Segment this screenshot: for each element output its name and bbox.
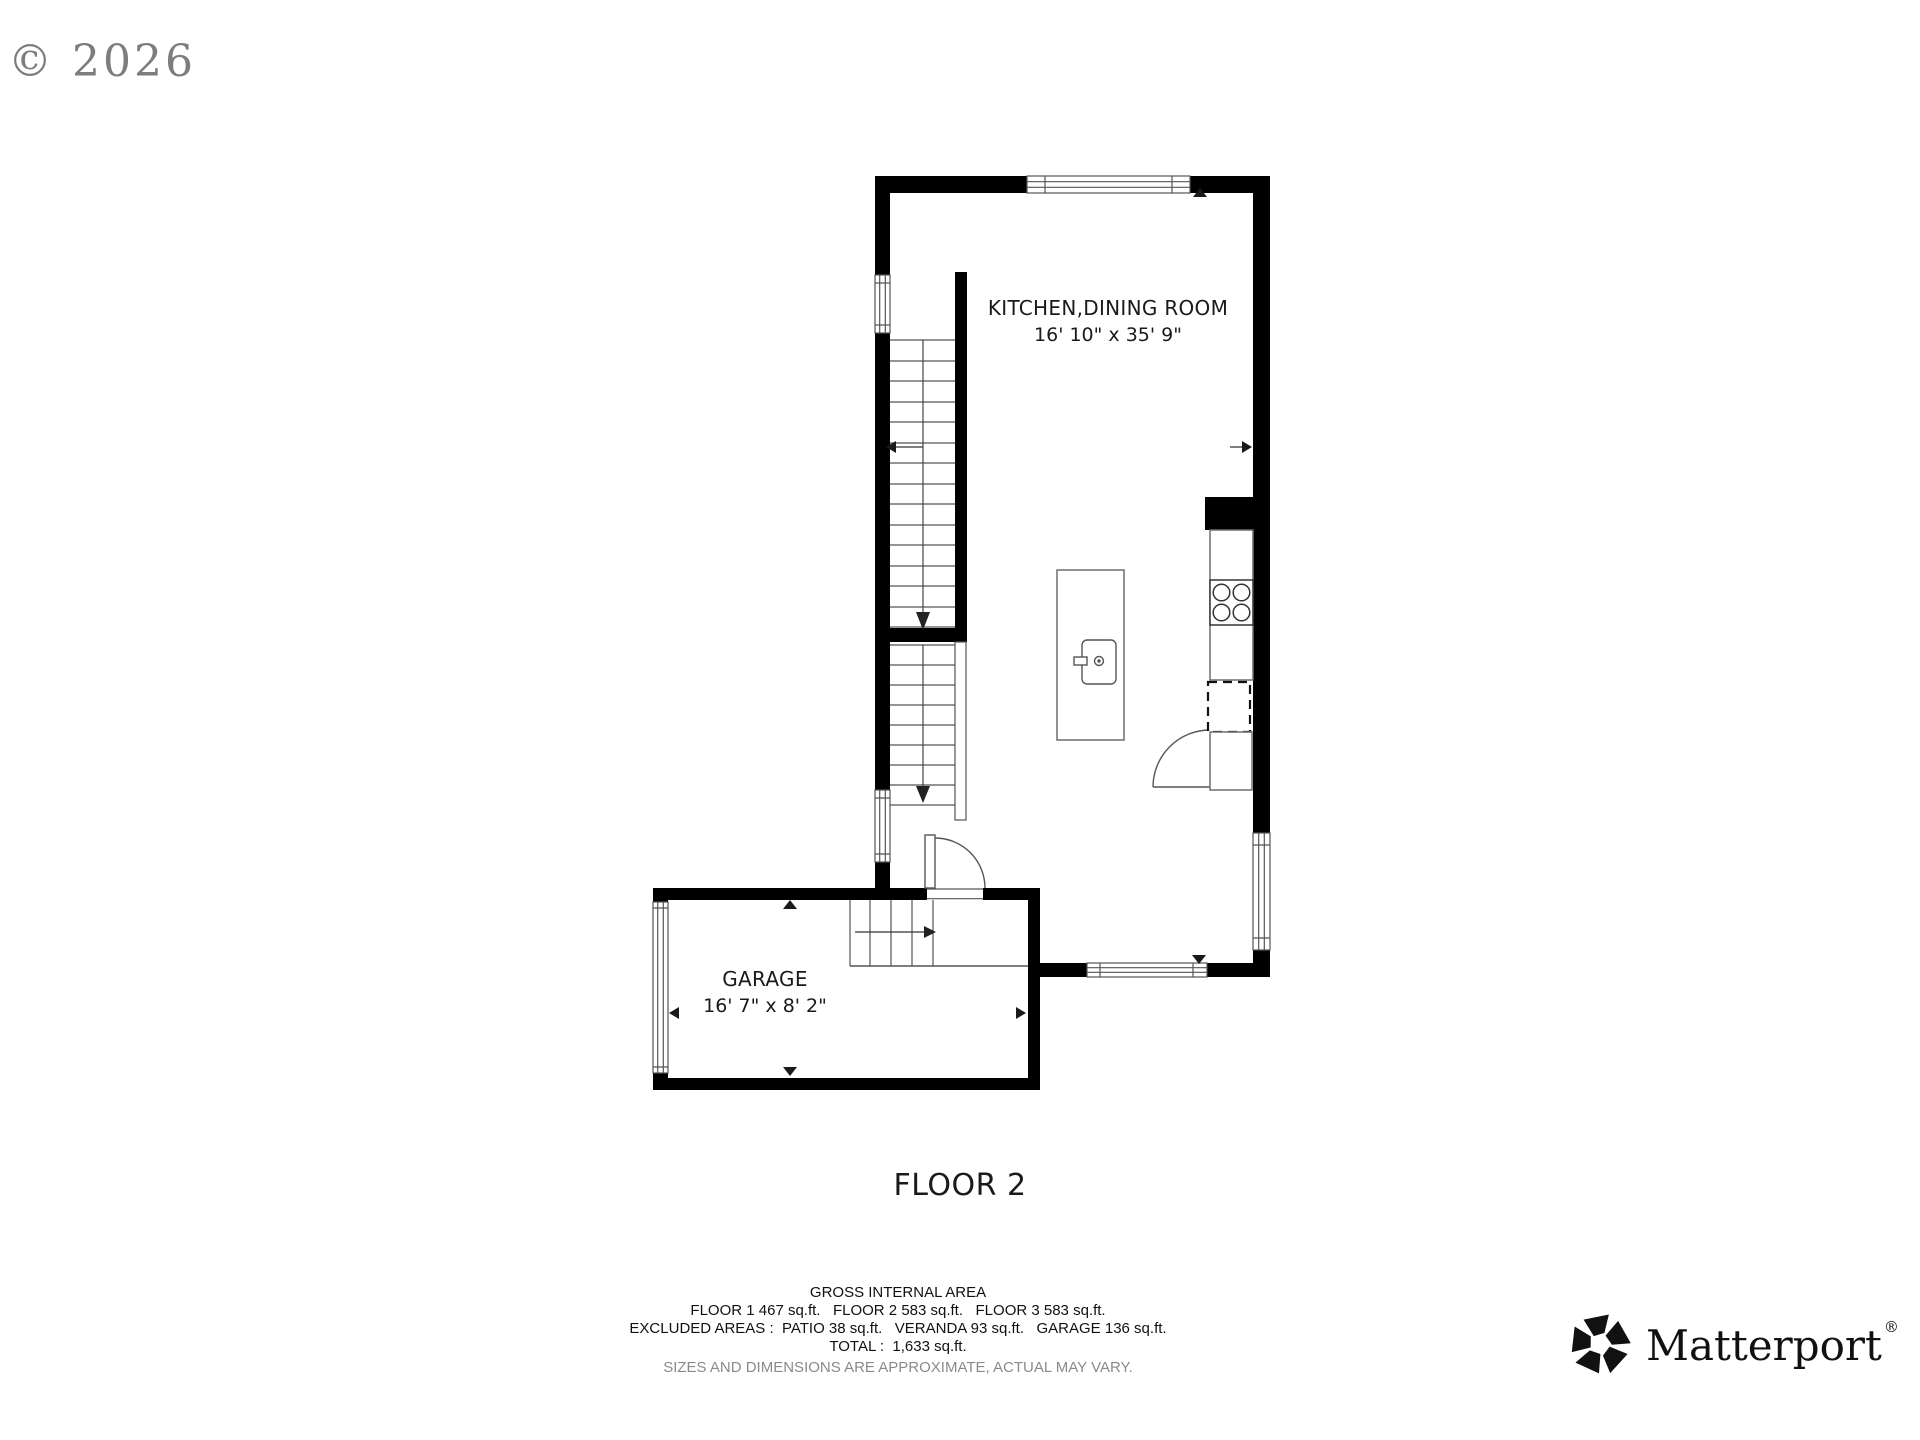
dim-arrow-right-kitchen <box>1242 441 1252 453</box>
disclaimer-text: SIZES AND DIMENSIONS ARE APPROXIMATE, AC… <box>398 1359 1398 1377</box>
room-name: GARAGE <box>565 966 965 993</box>
room-name: KITCHEN,DINING ROOM <box>908 295 1308 322</box>
appliance-dashed-box <box>1208 682 1250 732</box>
door-swing-arc <box>935 838 985 888</box>
door-threshold <box>927 888 983 900</box>
stairs-upper-flight <box>890 340 955 630</box>
room-dimensions: 16' 10" x 35' 9" <box>908 322 1308 349</box>
dim-arrow-right-garage <box>1016 1007 1026 1019</box>
brand-name: Matterport <box>1646 1321 1882 1370</box>
window-right <box>1253 833 1270 950</box>
dim-arrow-up-garage <box>783 900 797 909</box>
room-label-kitchen: KITCHEN,DINING ROOM 16' 10" x 35' 9" <box>908 295 1308 349</box>
stairs-garage-landing <box>850 900 1028 966</box>
brand-logo: Matterport® <box>1568 1312 1899 1376</box>
stair-direction-arrow-right <box>924 926 936 938</box>
window-left-lower <box>875 790 890 862</box>
room-dimensions: 16' 7" x 8' 2" <box>565 993 965 1020</box>
floor-plan-drawing <box>0 0 1920 1440</box>
window-top <box>1027 176 1190 193</box>
registered-mark: ® <box>1884 1318 1899 1336</box>
stove-icon <box>1210 580 1253 625</box>
matterport-logo-icon <box>1568 1312 1632 1376</box>
door-kitchen-to-landing <box>925 835 985 888</box>
floor-plan-page: © 2026 <box>0 0 1920 1440</box>
stairs-lower-flight <box>890 642 966 820</box>
door-leaf <box>925 835 935 888</box>
window-bottom <box>1087 963 1207 977</box>
lower-cabinet <box>1210 732 1252 790</box>
dim-arrow-down-garage <box>783 1067 797 1076</box>
total-area-line: TOTAL : 1,633 sq.ft. <box>398 1338 1398 1356</box>
floor-title: FLOOR 2 <box>760 1168 1160 1203</box>
stair-direction-arrow-down <box>916 786 930 803</box>
door-swing-arc <box>1153 730 1210 787</box>
area-summary: GROSS INTERNAL AREA FLOOR 1 467 sq.ft. F… <box>398 1284 1398 1377</box>
stair-railing <box>955 642 966 820</box>
excluded-area-line: EXCLUDED AREAS : PATIO 38 sq.ft. VERANDA… <box>398 1320 1398 1338</box>
gross-area-title: GROSS INTERNAL AREA <box>398 1284 1398 1302</box>
door-near-counter <box>1153 730 1210 787</box>
window-left-upper <box>875 275 890 333</box>
room-label-garage: GARAGE 16' 7" x 8' 2" <box>565 966 965 1020</box>
brand-wordmark: Matterport® <box>1646 1318 1899 1370</box>
floors-area-line: FLOOR 1 467 sq.ft. FLOOR 2 583 sq.ft. FL… <box>398 1302 1398 1320</box>
